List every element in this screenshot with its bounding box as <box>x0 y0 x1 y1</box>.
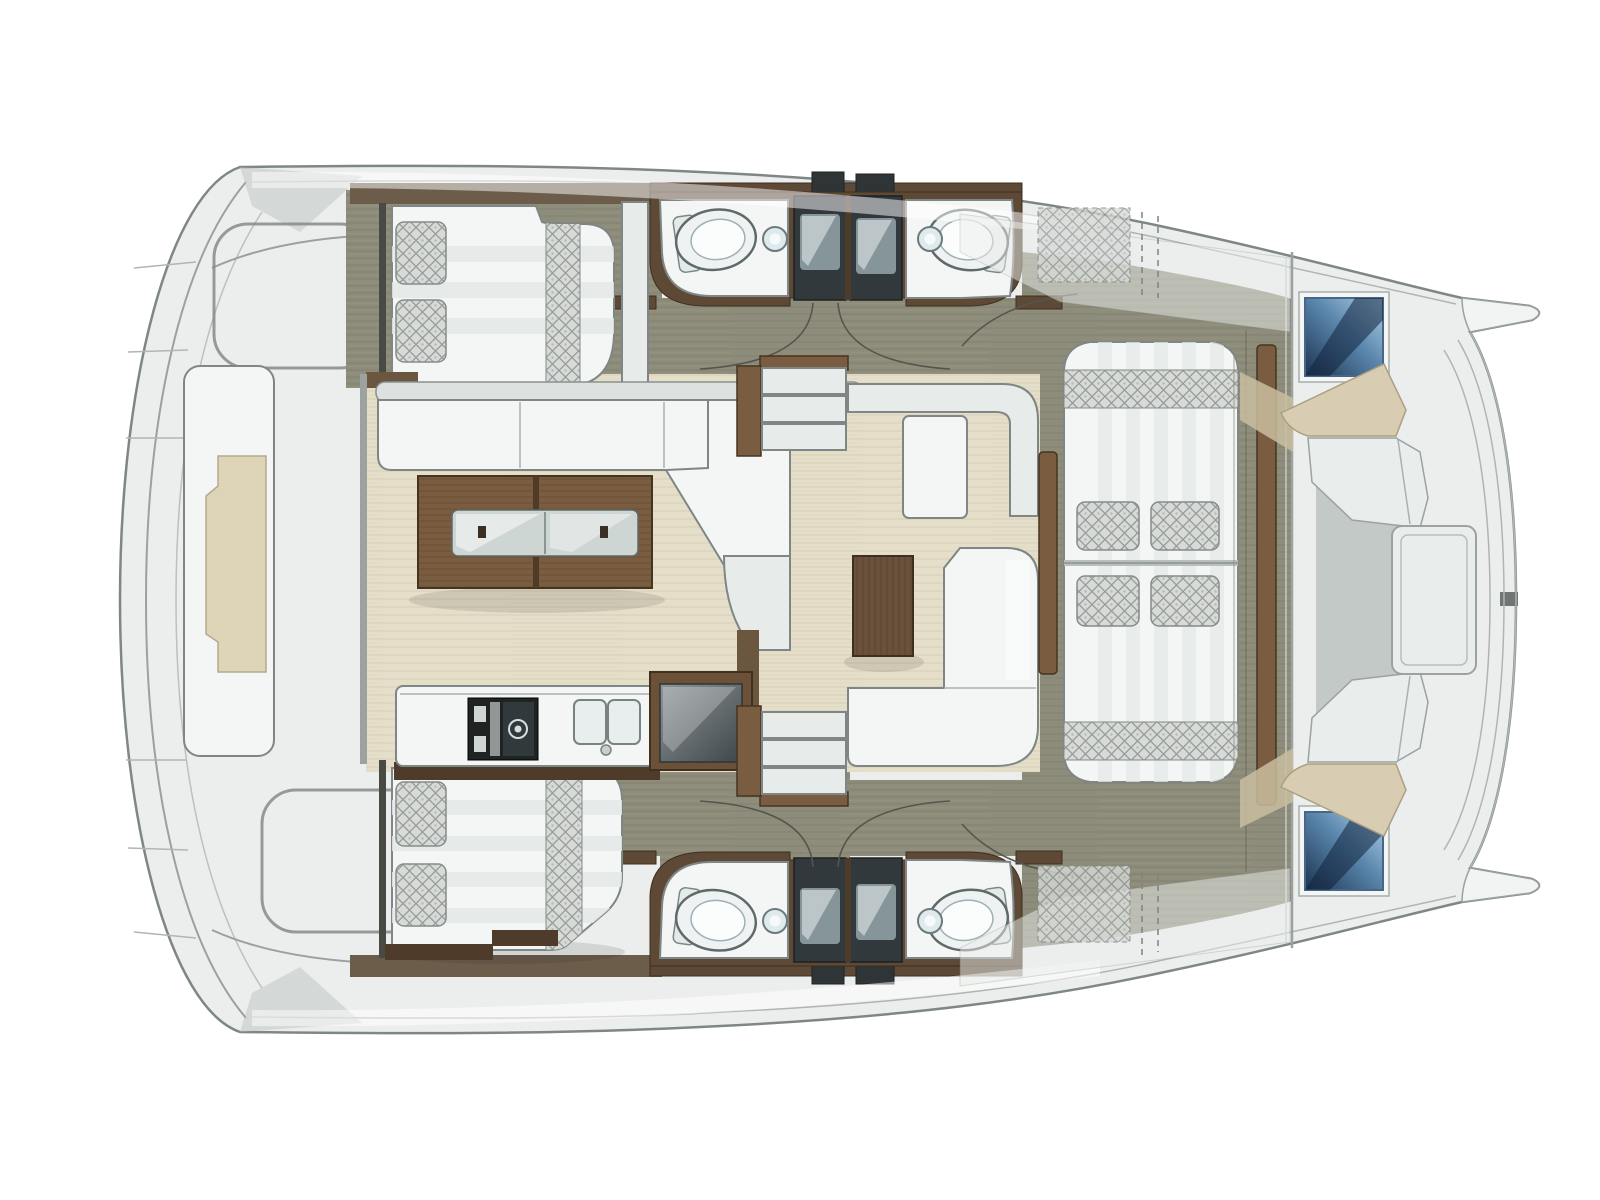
pillow-1 <box>396 222 446 284</box>
bow-tip-port <box>1462 868 1539 902</box>
salon-sofa <box>378 400 708 470</box>
shower-stall-4 <box>850 858 902 962</box>
sunbed-cushion-3 <box>1077 576 1139 626</box>
salon-table <box>418 476 652 588</box>
bow-console <box>1392 526 1476 674</box>
sink-4 <box>918 909 942 933</box>
sunbed-cushion-4 <box>1151 576 1219 626</box>
floorplan-stage: Catamaran floor plan — top-down interior… <box>0 0 1600 1200</box>
swim-platform-teak <box>206 456 266 672</box>
cockpit-coffee-table <box>853 556 913 656</box>
helm-pad-top <box>1038 208 1130 282</box>
sunbed-cushion-2 <box>1151 502 1219 550</box>
sink-2 <box>918 227 942 251</box>
salon-left-wall <box>360 374 367 764</box>
wardrobe-top <box>622 202 648 386</box>
door-wall-bottom-right <box>1016 851 1062 864</box>
stove <box>468 698 538 760</box>
helm-pad-bottom <box>1038 866 1130 942</box>
headboard-line-bottom <box>379 760 386 958</box>
pillow-4 <box>396 864 446 926</box>
bed-base-trim-1 <box>385 944 493 960</box>
shower-divider-2 <box>845 858 851 962</box>
sink-3 <box>763 909 787 933</box>
sunbed-cushion-1 <box>1077 502 1139 550</box>
shower-stall-3 <box>794 858 846 962</box>
sink-1 <box>763 227 787 251</box>
pillow-2 <box>396 300 446 362</box>
cockpit-chaise <box>903 416 967 518</box>
pillow-3 <box>396 782 446 846</box>
companionway-steps-starboard <box>737 356 848 456</box>
companionway-steps-port <box>737 706 848 806</box>
headboard-line-top <box>379 203 386 388</box>
galley <box>394 672 752 780</box>
sunbed-rail-left <box>1039 452 1057 674</box>
bed-base-trim-2 <box>492 930 558 946</box>
catamaran-floorplan: Catamaran floor plan — top-down interior… <box>0 0 1600 1200</box>
shower-stall-1 <box>794 196 846 300</box>
